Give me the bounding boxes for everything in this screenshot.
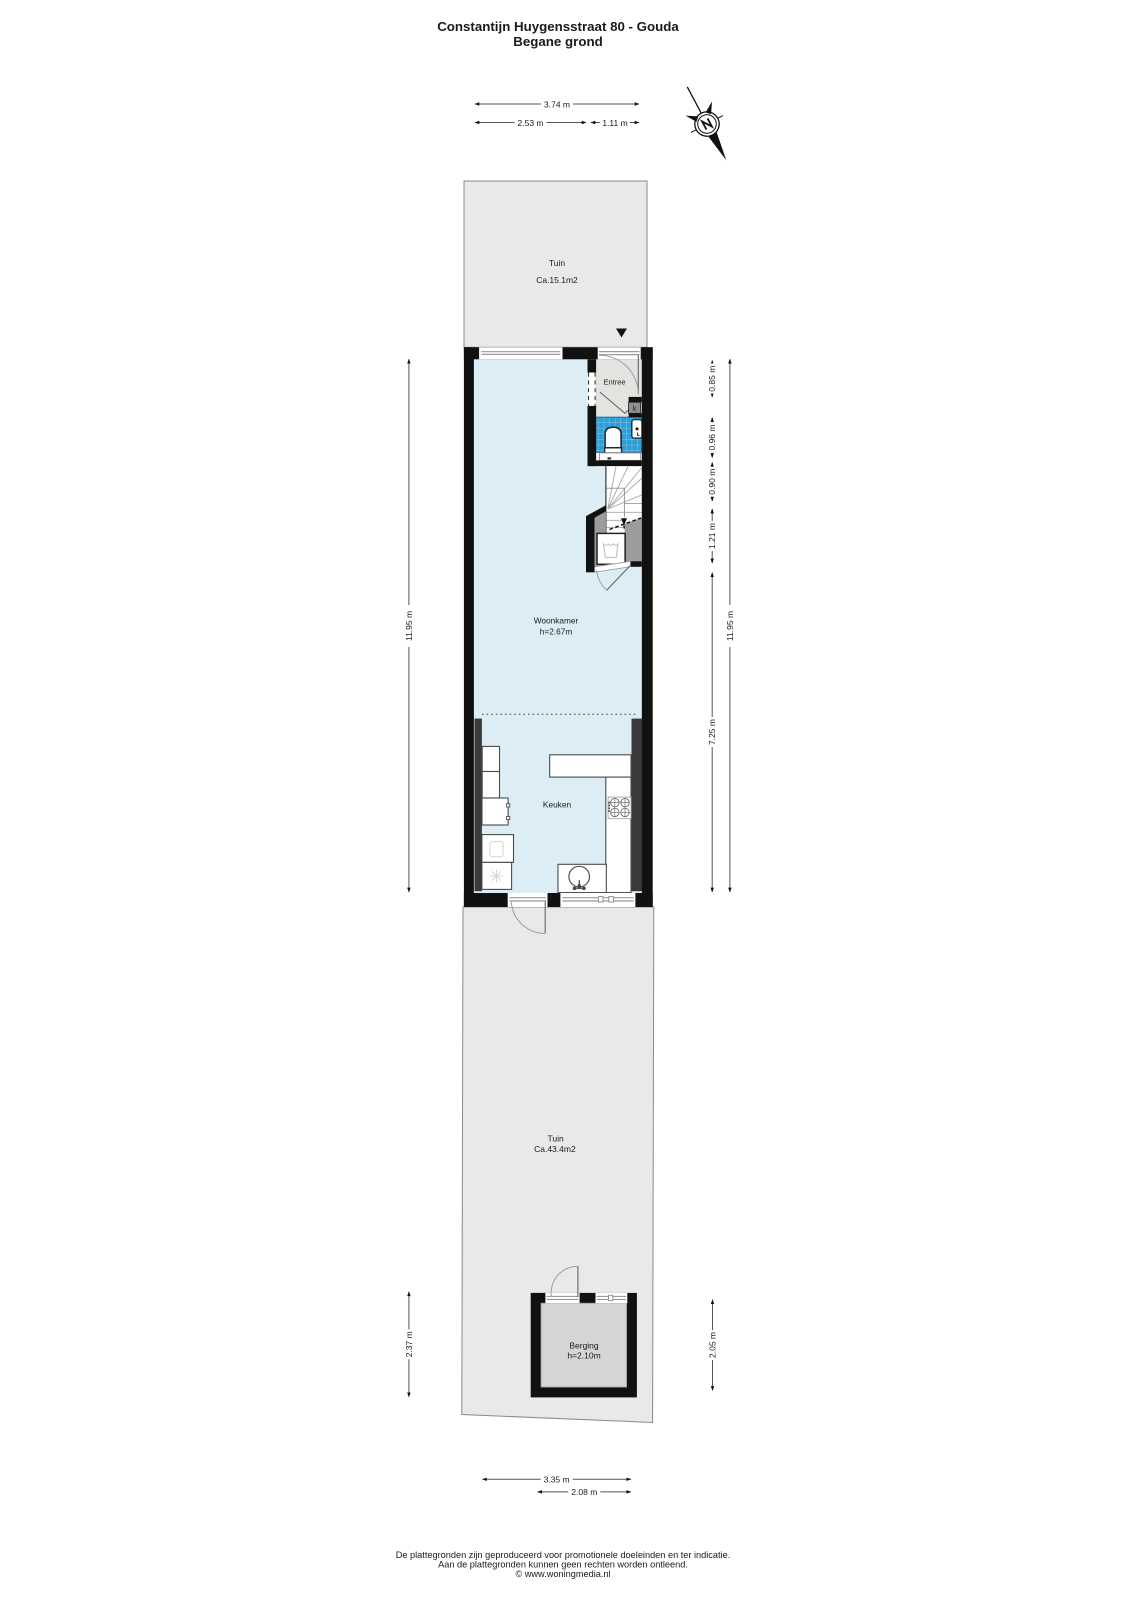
svg-text:h=2.67m: h=2.67m (540, 627, 573, 637)
svg-text:Begane grond: Begane grond (513, 34, 602, 49)
svg-text:Tuin: Tuin (549, 258, 565, 268)
svg-text:Tuin: Tuin (547, 1133, 563, 1143)
svg-text:Ca.15.1m2: Ca.15.1m2 (536, 275, 578, 285)
svg-text:De plattegronden zijn geproduc: De plattegronden zijn geproduceerd voor … (396, 1550, 731, 1560)
svg-text:2.08 m: 2.08 m (571, 1487, 597, 1497)
svg-text:Ca.43.4m2: Ca.43.4m2 (534, 1144, 576, 1154)
svg-text:3.35 m: 3.35 m (544, 1475, 570, 1485)
svg-text:Woonkamer: Woonkamer (534, 616, 579, 626)
svg-text:Keuken: Keuken (543, 800, 572, 810)
svg-text:1.11 m: 1.11 m (602, 118, 627, 128)
svg-text:h=2.10m: h=2.10m (567, 1350, 600, 1360)
svg-text:Entree: Entree (603, 377, 625, 386)
svg-text:k: k (633, 406, 637, 413)
svg-text:0.90 m: 0.90 m (707, 469, 717, 495)
svg-text:Berging: Berging (569, 1341, 599, 1351)
svg-text:3.74 m: 3.74 m (544, 99, 570, 109)
svg-text:Constantijn Huygensstraat 80 -: Constantijn Huygensstraat 80 - Gouda (437, 19, 679, 34)
svg-text:11.95 m: 11.95 m (725, 611, 735, 641)
svg-text:2.37 m: 2.37 m (404, 1331, 414, 1357)
svg-text:2.05 m: 2.05 m (708, 1332, 718, 1358)
svg-text:7.25 m: 7.25 m (707, 719, 717, 745)
svg-text:2.53 m: 2.53 m (518, 118, 544, 128)
svg-text:© www.woningmedia.nl: © www.woningmedia.nl (515, 1569, 610, 1579)
svg-text:1.21 m: 1.21 m (707, 523, 717, 549)
svg-text:Aan de plattegronden kunnen ge: Aan de plattegronden kunnen geen rechten… (438, 1560, 688, 1570)
svg-text:0.96 m: 0.96 m (707, 425, 717, 451)
svg-text:0.85 m: 0.85 m (707, 366, 717, 392)
svg-text:11.95 m: 11.95 m (404, 611, 414, 641)
